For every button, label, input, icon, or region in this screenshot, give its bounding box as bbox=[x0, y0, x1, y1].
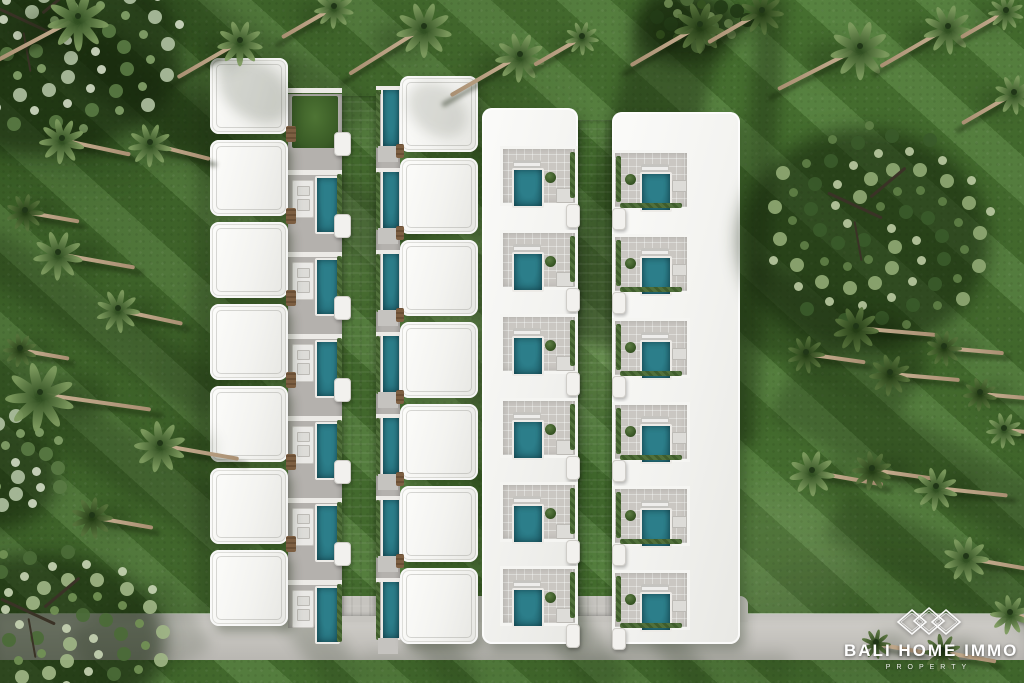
palm-crown-center bbox=[89, 512, 95, 518]
palm-tree bbox=[316, 0, 352, 24]
foliage bbox=[1, 441, 10, 450]
foliage bbox=[37, 64, 46, 73]
foliage bbox=[36, 483, 45, 492]
foliage bbox=[9, 487, 23, 501]
foliage bbox=[902, 320, 911, 329]
watermark-subtitle: PROPERTY bbox=[844, 664, 1014, 671]
foliage bbox=[134, 665, 143, 674]
foliage bbox=[37, 581, 51, 595]
palm-crown-center bbox=[115, 305, 121, 311]
foliage bbox=[61, 70, 75, 84]
palm-tree bbox=[399, 1, 449, 51]
foliage bbox=[0, 498, 9, 512]
foliage bbox=[13, 71, 22, 80]
palm-crown-center bbox=[22, 207, 28, 213]
palm-tree bbox=[854, 450, 890, 486]
palm-tree bbox=[791, 449, 833, 491]
foliage bbox=[933, 301, 942, 310]
foliage bbox=[768, 200, 782, 214]
foliage bbox=[972, 259, 986, 273]
foliage bbox=[37, 0, 51, 3]
foliage bbox=[117, 40, 131, 54]
foliage bbox=[938, 197, 947, 206]
foliage bbox=[118, 601, 127, 610]
foliage bbox=[831, 201, 840, 210]
palm-tree bbox=[567, 21, 597, 51]
foliage bbox=[160, 68, 174, 82]
foliage bbox=[39, 447, 53, 461]
palm-tree bbox=[50, 0, 106, 44]
foliage bbox=[831, 236, 845, 250]
watermark: BALI HOME IMMO PROPERTY bbox=[844, 605, 1014, 671]
foliage bbox=[42, 666, 56, 680]
foliage bbox=[913, 163, 927, 177]
foliage bbox=[833, 180, 842, 189]
palm-crown-center bbox=[579, 33, 585, 39]
foliage bbox=[63, 99, 72, 108]
foliage bbox=[86, 84, 95, 93]
foliage bbox=[13, 88, 27, 102]
foliage bbox=[824, 154, 838, 168]
foliage bbox=[908, 277, 917, 286]
foliage bbox=[120, 582, 134, 596]
palm-crown-center bbox=[977, 389, 983, 395]
canopy-tree bbox=[0, 536, 187, 683]
palm-crown-center bbox=[517, 51, 523, 57]
palm-crown-center bbox=[803, 349, 809, 355]
foliage bbox=[63, 637, 77, 651]
foliage bbox=[0, 482, 1, 491]
watermark-title: BALI HOME IMMO bbox=[844, 641, 1014, 661]
palm-tree bbox=[916, 466, 956, 506]
foliage bbox=[851, 136, 865, 150]
foliage bbox=[76, 608, 90, 622]
foliage bbox=[820, 257, 829, 266]
foliage bbox=[876, 202, 885, 211]
palm-crown-center bbox=[1011, 89, 1017, 95]
foliage bbox=[853, 190, 867, 204]
foliage bbox=[26, 596, 40, 610]
foliage bbox=[962, 196, 976, 210]
palm-crown-center bbox=[963, 553, 969, 559]
aerial-render: BALI HOME IMMO PROPERTY bbox=[0, 0, 1024, 683]
foliage bbox=[143, 600, 157, 614]
foliage bbox=[2, 0, 11, 5]
foliage bbox=[118, 567, 127, 576]
palm-crown-center bbox=[869, 465, 875, 471]
foliage bbox=[141, 641, 150, 650]
palm-crown-center bbox=[887, 369, 893, 375]
foliage bbox=[905, 147, 914, 156]
foliage bbox=[61, 545, 75, 559]
foliage bbox=[940, 174, 954, 188]
foliage bbox=[2, 633, 16, 647]
foliage bbox=[64, 51, 78, 65]
foliage bbox=[121, 11, 130, 20]
foliage bbox=[790, 258, 804, 272]
foliage bbox=[843, 262, 852, 271]
foliage bbox=[794, 282, 803, 291]
foliage bbox=[921, 211, 935, 225]
foliage bbox=[0, 103, 1, 112]
foliage bbox=[115, 106, 124, 115]
foliage bbox=[30, 106, 39, 115]
foliage bbox=[849, 161, 858, 170]
foliage bbox=[802, 159, 811, 168]
palm-tree bbox=[8, 360, 72, 424]
palm-tree bbox=[945, 535, 987, 577]
foliage bbox=[928, 277, 942, 291]
foliage bbox=[141, 98, 155, 112]
foliage bbox=[48, 562, 57, 571]
foliage bbox=[93, 592, 102, 601]
bali-home-immo-logo-icon bbox=[890, 605, 968, 639]
palm-tree bbox=[219, 19, 261, 61]
foliage bbox=[90, 573, 104, 587]
foliage bbox=[14, 656, 23, 665]
foliage bbox=[917, 256, 926, 265]
palm-crown-center bbox=[75, 13, 81, 19]
foliage bbox=[912, 236, 921, 245]
foliage bbox=[120, 62, 134, 76]
palm-tree bbox=[871, 353, 909, 391]
foliage bbox=[885, 261, 899, 275]
foliage bbox=[68, 593, 77, 602]
foliage bbox=[97, 65, 106, 74]
foliage bbox=[804, 202, 818, 216]
palm-tree bbox=[996, 74, 1024, 110]
foliage bbox=[953, 274, 962, 283]
foliage bbox=[916, 186, 925, 195]
foliage bbox=[893, 187, 902, 196]
foliage bbox=[865, 121, 874, 130]
foliage bbox=[42, 83, 56, 97]
foliage bbox=[986, 207, 995, 216]
foliage bbox=[954, 218, 963, 227]
foliage bbox=[161, 37, 175, 51]
foliage bbox=[20, 572, 29, 581]
palm-crown-center bbox=[331, 3, 337, 9]
palm-tree bbox=[742, 0, 782, 30]
foliage bbox=[11, 458, 20, 467]
foliage bbox=[0, 15, 8, 24]
foliage bbox=[23, 551, 37, 565]
foliage bbox=[109, 84, 123, 98]
palm-crown-center bbox=[697, 21, 703, 27]
foliage bbox=[4, 588, 13, 597]
foliage bbox=[828, 135, 837, 144]
foliage bbox=[773, 232, 787, 246]
foliage bbox=[868, 276, 882, 290]
foliage bbox=[887, 293, 896, 302]
foliage bbox=[956, 292, 970, 306]
palm-crown-center bbox=[759, 7, 765, 13]
foliage bbox=[788, 216, 797, 225]
palm-crown-center bbox=[59, 135, 65, 141]
foliage bbox=[7, 117, 21, 131]
foliage bbox=[54, 436, 63, 445]
foliage bbox=[37, 649, 46, 658]
palm-tree bbox=[928, 330, 960, 362]
foliage bbox=[28, 499, 37, 508]
foliage bbox=[923, 133, 937, 147]
palm-tree bbox=[835, 305, 877, 347]
palm-tree bbox=[98, 288, 138, 328]
foliage bbox=[117, 647, 131, 661]
foliage bbox=[843, 219, 852, 228]
foliage bbox=[1, 605, 10, 614]
palm-crown-center bbox=[237, 37, 243, 43]
foliage bbox=[84, 667, 93, 676]
foliage bbox=[935, 229, 949, 243]
palm-tree bbox=[988, 412, 1020, 444]
foliage bbox=[156, 625, 170, 639]
foliage bbox=[800, 241, 809, 250]
foliage bbox=[148, 10, 162, 24]
foliage bbox=[146, 55, 155, 64]
foliage bbox=[154, 653, 168, 667]
palm-crown-center bbox=[421, 23, 427, 29]
foliage bbox=[0, 550, 8, 559]
palm-crown-center bbox=[809, 467, 815, 473]
foliage bbox=[148, 585, 157, 594]
foliage bbox=[0, 417, 5, 431]
foliage bbox=[864, 172, 878, 186]
palm-crown-center bbox=[147, 139, 153, 145]
palm-tree bbox=[130, 122, 170, 162]
foliage bbox=[808, 177, 822, 191]
palm-crown-center bbox=[853, 323, 859, 329]
foliage bbox=[906, 298, 920, 312]
palm-tree bbox=[990, 0, 1022, 26]
foliage bbox=[15, 670, 29, 683]
palm-tree bbox=[73, 496, 111, 534]
foliage bbox=[0, 565, 8, 579]
palm-tree bbox=[5, 333, 35, 363]
foliage bbox=[99, 613, 113, 627]
palm-tree bbox=[789, 335, 823, 369]
palm-tree bbox=[965, 377, 995, 407]
foliage bbox=[973, 226, 987, 240]
foliage bbox=[114, 627, 128, 641]
foliage bbox=[62, 624, 71, 633]
foliage bbox=[50, 606, 59, 615]
foliage bbox=[967, 176, 976, 185]
palm-crown-center bbox=[1003, 7, 1009, 13]
palm-crown-center bbox=[17, 345, 23, 351]
palm-crown-center bbox=[1001, 425, 1007, 431]
canopy-tree bbox=[746, 110, 1010, 346]
palm-tree bbox=[8, 193, 42, 227]
foliage bbox=[60, 654, 74, 668]
foliage bbox=[664, 0, 673, 8]
foliage bbox=[813, 223, 827, 237]
foliage bbox=[11, 470, 25, 484]
foliage bbox=[885, 129, 899, 143]
foliage bbox=[123, 0, 137, 4]
palm-crown-center bbox=[933, 483, 939, 489]
tree-layer bbox=[0, 0, 1024, 683]
foliage bbox=[53, 480, 67, 494]
foliage bbox=[899, 205, 913, 219]
foliage bbox=[864, 255, 873, 264]
foliage bbox=[825, 297, 834, 306]
foliage bbox=[138, 82, 147, 91]
foliage bbox=[815, 275, 829, 289]
palm-crown-center bbox=[55, 249, 61, 255]
foliage bbox=[135, 619, 144, 628]
foliage bbox=[85, 103, 99, 117]
foliage bbox=[51, 461, 65, 475]
foliage bbox=[16, 429, 25, 438]
foliage bbox=[21, 442, 35, 456]
foliage bbox=[32, 467, 41, 476]
foliage bbox=[874, 149, 883, 158]
foliage bbox=[769, 256, 778, 265]
foliage bbox=[789, 188, 798, 197]
foliage bbox=[960, 245, 969, 254]
palm-tree bbox=[136, 419, 184, 467]
foliage bbox=[175, 20, 184, 29]
palm-tree bbox=[35, 229, 81, 275]
palm-crown-center bbox=[941, 343, 947, 349]
foliage bbox=[776, 166, 790, 180]
foliage bbox=[843, 281, 857, 295]
foliage bbox=[937, 252, 951, 266]
foliage bbox=[107, 667, 121, 681]
palm-crown-center bbox=[857, 43, 863, 49]
palm-tree bbox=[41, 117, 83, 159]
foliage bbox=[800, 302, 814, 316]
foliage bbox=[139, 30, 148, 39]
foliage bbox=[938, 156, 947, 165]
foliage bbox=[89, 634, 98, 643]
foliage bbox=[94, 650, 103, 659]
foliage bbox=[153, 0, 162, 1]
palm-crown-center bbox=[37, 389, 43, 395]
palm-crown-center bbox=[157, 440, 163, 446]
foliage bbox=[887, 224, 896, 233]
foliage bbox=[82, 560, 91, 569]
foliage bbox=[15, 620, 24, 629]
foliage bbox=[888, 240, 902, 254]
palm-crown-center bbox=[945, 23, 951, 29]
foliage bbox=[91, 47, 100, 56]
